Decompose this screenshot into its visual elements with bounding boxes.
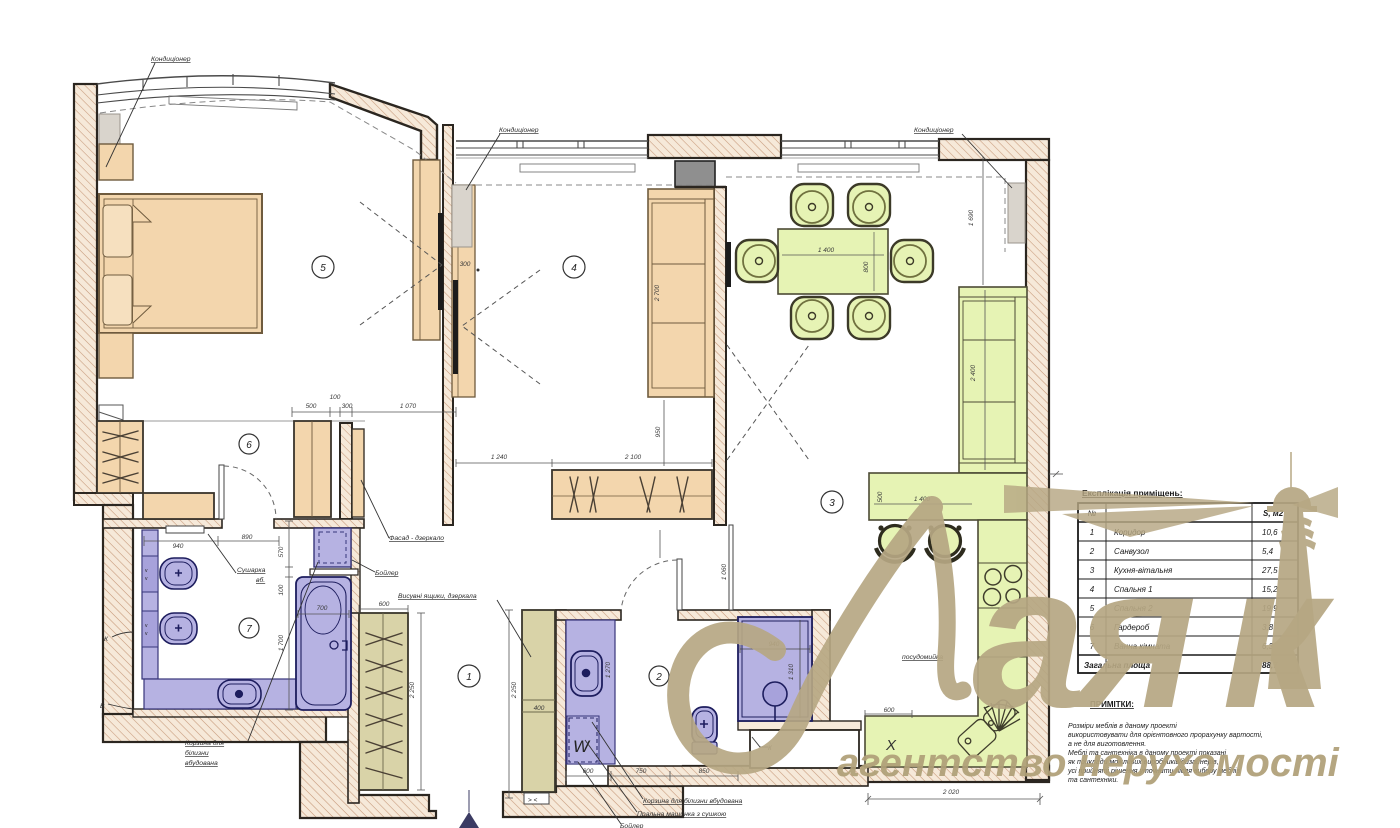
svg-text:4: 4	[571, 263, 577, 274]
svg-text:700: 700	[317, 605, 328, 612]
svg-text:Кондиціонер: Кондиціонер	[914, 126, 954, 134]
svg-text:2 700: 2 700	[654, 284, 661, 302]
svg-text:В: В	[100, 703, 105, 710]
svg-text:1 690: 1 690	[968, 209, 975, 226]
svg-text:Висувні ящики, дзеркала: Висувні ящики, дзеркала	[398, 592, 477, 600]
svg-text:300: 300	[342, 403, 353, 410]
svg-text:570: 570	[278, 546, 285, 557]
svg-text:6: 6	[246, 440, 252, 451]
svg-text:Пральна машинка з сушкою: Пральна машинка з сушкою	[637, 811, 726, 818]
svg-text:W: W	[573, 737, 591, 756]
svg-text:вбудована: вбудована	[185, 759, 218, 767]
svg-text:500: 500	[877, 491, 884, 502]
svg-text:1: 1	[466, 672, 472, 683]
svg-text:7: 7	[246, 624, 252, 635]
svg-text:Фасад - дзеркало: Фасад - дзеркало	[389, 534, 444, 542]
svg-text:950: 950	[655, 426, 662, 437]
svg-text:2 100: 2 100	[624, 454, 642, 461]
svg-text:1 270: 1 270	[605, 661, 612, 678]
svg-text:750: 750	[636, 768, 647, 775]
svg-text:2 400: 2 400	[970, 364, 977, 382]
svg-text:Корзина для білизни вбудована: Корзина для білизни вбудована	[643, 797, 742, 805]
svg-text:500: 500	[306, 403, 317, 410]
svg-text:890: 890	[242, 534, 253, 541]
svg-text:850: 850	[699, 768, 710, 775]
svg-text:Кондиціонер: Кондиціонер	[151, 55, 191, 63]
svg-text:600: 600	[379, 601, 390, 608]
svg-text:1 060: 1 060	[721, 563, 728, 580]
svg-text:100: 100	[278, 584, 285, 595]
svg-text:Сушарка: Сушарка	[237, 567, 266, 574]
svg-text:1 070: 1 070	[400, 403, 417, 410]
svg-text:1 400: 1 400	[818, 247, 835, 254]
svg-text:ая: ая	[972, 522, 1194, 751]
svg-text:3: 3	[829, 498, 835, 509]
svg-text:Бойлер: Бойлер	[620, 822, 644, 828]
svg-text:800: 800	[863, 261, 870, 272]
svg-text:5: 5	[320, 263, 326, 274]
svg-text:агентство нерухомості: агентство нерухомості	[837, 741, 1340, 785]
svg-text:1 310: 1 310	[788, 663, 795, 680]
svg-text:100: 100	[330, 394, 341, 401]
svg-text:к: к	[1222, 522, 1335, 751]
svg-text:посудомийка: посудомийка	[902, 653, 943, 661]
svg-text:2 020: 2 020	[942, 789, 960, 796]
svg-text:2 250: 2 250	[511, 681, 518, 699]
svg-text:> <: > <	[528, 797, 538, 804]
svg-text:Кондиціонер: Кондиціонер	[499, 126, 539, 134]
svg-text:2 250: 2 250	[409, 681, 416, 699]
svg-text:Бойлер: Бойлер	[375, 569, 399, 577]
svg-text:2: 2	[655, 672, 662, 683]
svg-text:вб.: вб.	[256, 576, 265, 584]
svg-text:600: 600	[884, 707, 895, 714]
svg-text:300: 300	[460, 261, 471, 268]
svg-text:1 240: 1 240	[491, 454, 508, 461]
svg-text:400: 400	[534, 705, 545, 712]
svg-text:940: 940	[173, 543, 184, 550]
svg-text:Корзина для: Корзина для	[185, 739, 224, 747]
svg-text:білизни: білизни	[185, 749, 209, 757]
